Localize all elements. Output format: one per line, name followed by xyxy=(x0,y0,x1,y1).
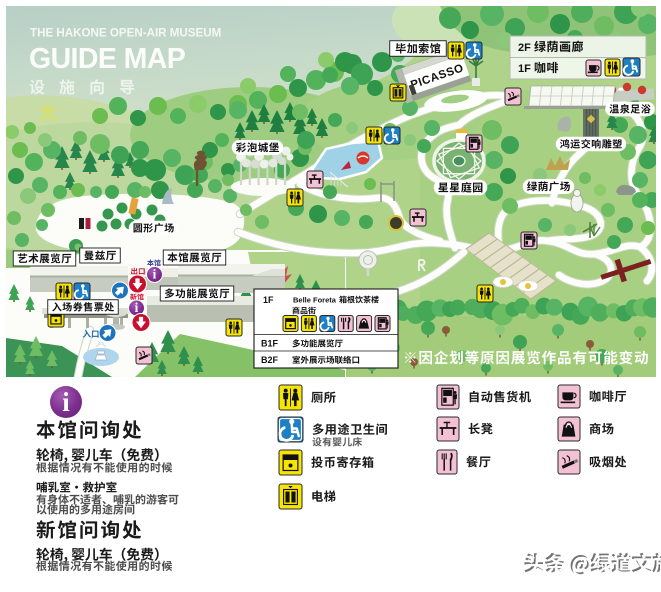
svg-text:i: i xyxy=(153,267,157,282)
svg-text:THE HAKONE OPEN-AIR MUSEUM: THE HAKONE OPEN-AIR MUSEUM xyxy=(30,27,221,40)
svg-text:1F: 1F xyxy=(518,63,531,75)
svg-text:i: i xyxy=(62,387,70,417)
svg-text:i: i xyxy=(135,300,139,315)
svg-text:GUIDE MAP: GUIDE MAP xyxy=(29,43,186,75)
svg-text:2F: 2F xyxy=(518,42,531,54)
svg-text:B1F: B1F xyxy=(261,339,279,349)
svg-text:B2F: B2F xyxy=(261,355,279,365)
svg-text:Belle Foreta: Belle Foreta xyxy=(293,296,337,305)
svg-text:1F: 1F xyxy=(263,295,274,305)
